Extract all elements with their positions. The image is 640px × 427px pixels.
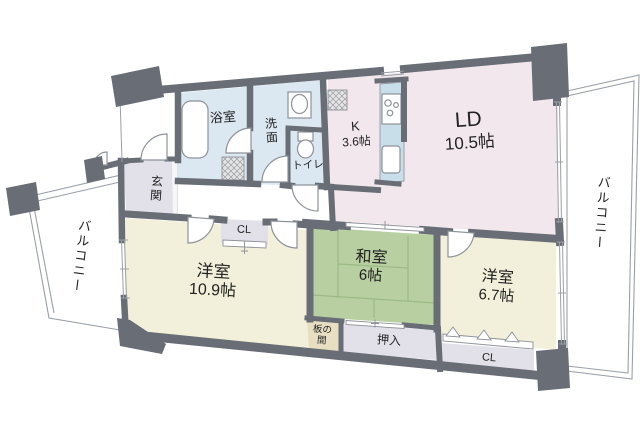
balcony-right-outline — [567, 75, 639, 379]
wall-oshiire-closet — [438, 329, 440, 369]
stove-burner-icon — [385, 100, 391, 106]
floorplan-image: 浴室 洗面 トイレ K 3.6帖 LD 10.5帖 洋室 10.9帖 和室 6帖… — [0, 0, 640, 427]
room-entrance-floor — [124, 159, 178, 216]
pillar-balcony-left — [6, 182, 40, 216]
stove-burner-icon — [387, 110, 393, 116]
pipe-shaft-hatch-bath — [222, 157, 244, 180]
kitchen-sink-icon — [382, 146, 400, 173]
washbasin-bowl-icon — [292, 95, 308, 114]
wall-left-upper — [121, 161, 122, 240]
stove-burner-icon — [394, 103, 399, 108]
pillar-bottom-right — [536, 348, 570, 391]
bathtub-icon — [182, 101, 208, 158]
wall-washroom-kitchen — [323, 80, 327, 187]
balcony-left-outline — [27, 175, 126, 331]
stove-icon — [382, 94, 401, 124]
pillar-entry-small — [84, 156, 105, 183]
itanoma-floor — [307, 320, 341, 352]
room-kitchen-living-floor — [328, 59, 559, 235]
toilet-bowl-icon — [298, 140, 314, 158]
pillar-top-right — [531, 43, 569, 101]
pipe-shaft-hatch-kitchen — [328, 90, 347, 110]
floorplan-canvas — [0, 0, 640, 427]
